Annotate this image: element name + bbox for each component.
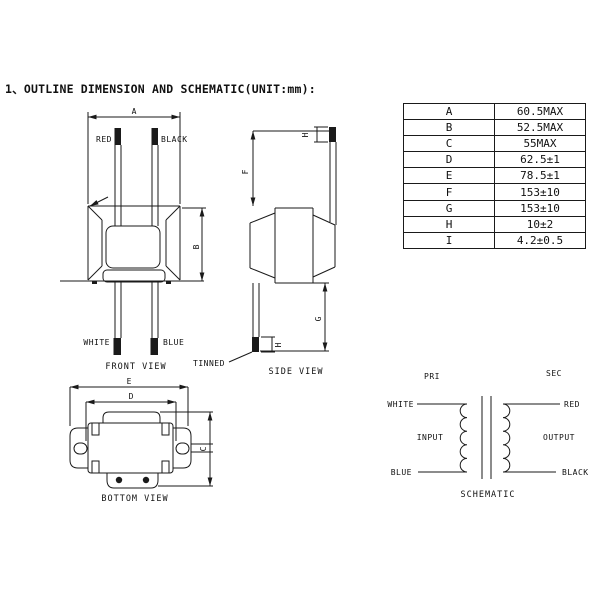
pri-label: PRI: [424, 372, 440, 381]
mounting-slot-right: [176, 443, 189, 454]
front-view-caption: FRONT VIEW: [105, 362, 166, 372]
bottom-wires: [114, 282, 159, 355]
mounting-slot-left: [74, 443, 87, 454]
dim-f-label: F: [241, 169, 250, 174]
dim-d-label: D: [129, 392, 134, 401]
corner-leader-arrow: [90, 197, 108, 206]
tinned-leader-line: [229, 352, 252, 362]
side-view-drawing: F H: [193, 127, 336, 377]
front-view-drawing: A RED BLACK: [60, 107, 206, 372]
bobbin-flange: [103, 270, 165, 282]
dim-a-lines: [88, 112, 180, 204]
side-body-outline: [250, 208, 335, 283]
side-view-caption: SIDE VIEW: [268, 367, 323, 377]
dim-a-label: A: [132, 107, 137, 116]
drawing-sheet: 1、OUTLINE DIMENSION AND SCHEMATIC(UNIT:m…: [0, 0, 600, 600]
side-bottom-wire: [252, 283, 259, 352]
tinned-tip: [329, 127, 336, 142]
input-label: INPUT: [417, 433, 444, 442]
schematic-drawing: PRI SEC WHITE BLUE RED BLACK INPUT OUTPU…: [387, 369, 588, 500]
lead-hole: [116, 477, 122, 483]
sec-label: SEC: [546, 369, 562, 378]
secondary-coil: [503, 404, 510, 472]
white-wire-label: WHITE: [83, 338, 110, 347]
schematic-caption: SCHEMATIC: [460, 490, 515, 500]
red-wire-label: RED: [96, 135, 112, 144]
black-wire-label: BLACK: [161, 135, 188, 144]
dim-h-bottom-lines: [261, 337, 275, 352]
tinned-tip: [115, 128, 122, 145]
dim-h-top-lines: [314, 127, 328, 142]
schematic-black-label: BLACK: [562, 468, 589, 477]
core-lines: [482, 396, 491, 479]
dim-h-top-label: H: [301, 132, 310, 137]
bottom-view-caption: BOTTOM VIEW: [101, 494, 168, 504]
mounting-ear-left: [70, 428, 88, 468]
lead-hole: [143, 477, 149, 483]
dim-c-label: C: [199, 446, 208, 451]
tinned-tip: [114, 338, 122, 355]
bobbin-window: [106, 226, 160, 268]
dim-b-lines: [182, 208, 206, 281]
side-top-wire: [330, 142, 336, 225]
core-outline: [88, 423, 173, 473]
output-label: OUTPUT: [543, 433, 575, 442]
schematic-white-label: WHITE: [387, 400, 414, 409]
bottom-view-drawing: E D: [70, 377, 213, 504]
schematic-blue-label: BLUE: [391, 468, 412, 477]
top-wires: [115, 128, 159, 226]
dim-b-label: B: [192, 244, 201, 249]
dim-e-label: E: [127, 377, 132, 386]
tinned-label: TINNED: [193, 359, 225, 368]
schematic-red-label: RED: [564, 400, 580, 409]
bottom-body-outline: [70, 412, 191, 488]
blue-wire-label: BLUE: [163, 338, 184, 347]
technical-drawing-canvas: A RED BLACK: [0, 0, 600, 600]
tinned-tip: [252, 337, 259, 352]
tinned-tip: [152, 128, 159, 145]
primary-coil: [460, 404, 467, 472]
core-bump: [103, 412, 160, 423]
front-body-outline: [60, 197, 204, 284]
tinned-tip: [151, 338, 159, 355]
dim-g-label: G: [314, 316, 323, 321]
lead-exit-block: [107, 473, 158, 488]
dim-h-bottom-label: H: [274, 342, 283, 347]
